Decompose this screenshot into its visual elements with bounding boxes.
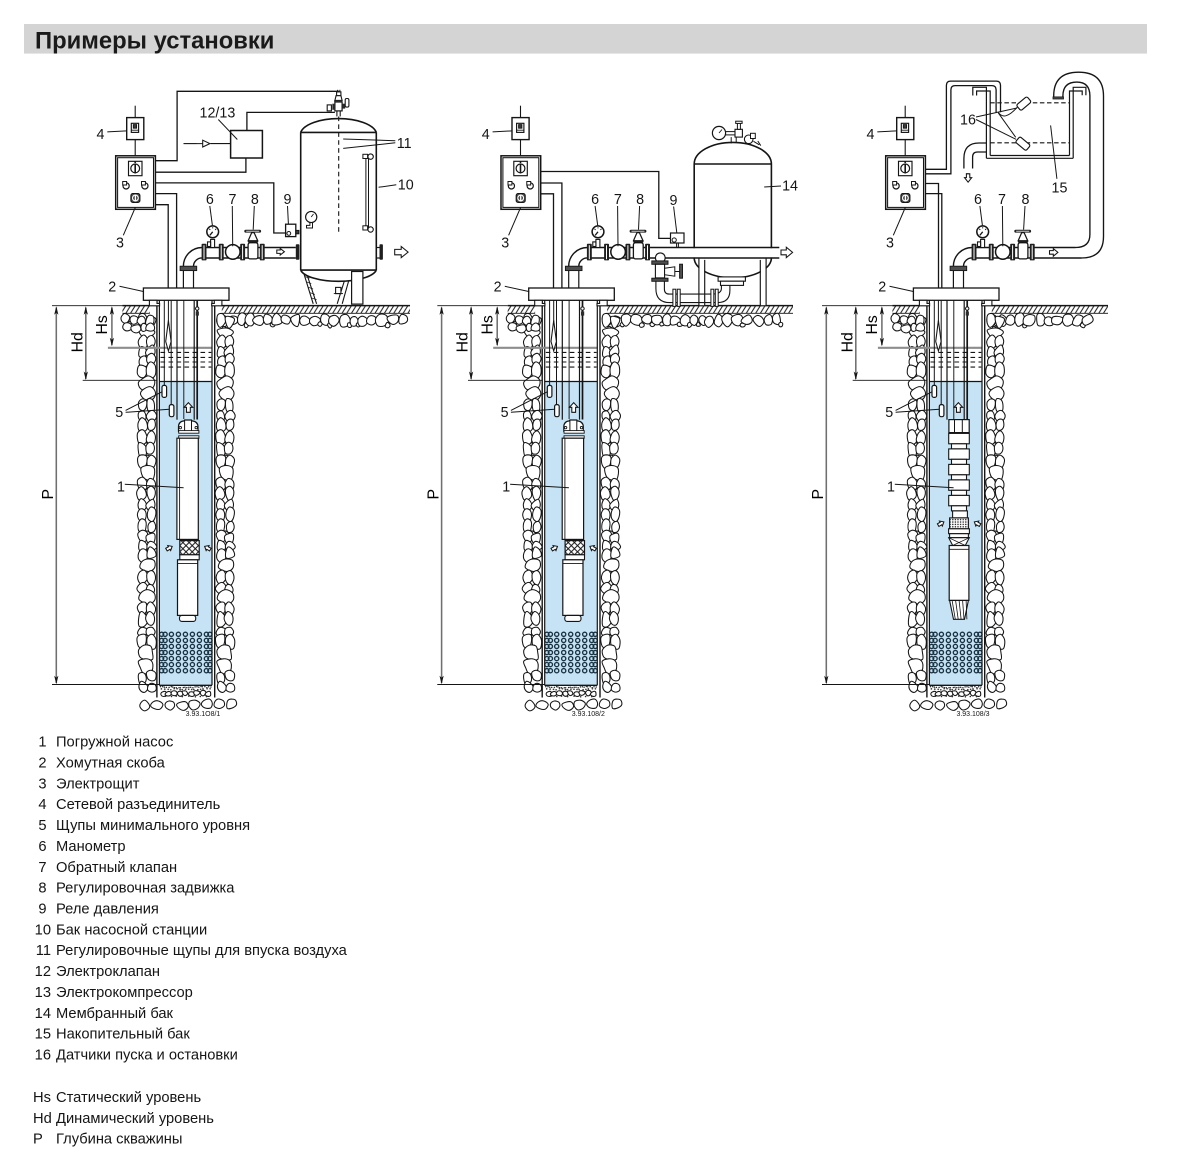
svg-text:Статический уровень: Статический уровень xyxy=(56,1090,201,1106)
svg-text:15: 15 xyxy=(35,1027,51,1043)
svg-text:Глубина скважины: Глубина скважины xyxy=(56,1132,182,1148)
svg-text:11: 11 xyxy=(36,943,51,959)
svg-text:12/13: 12/13 xyxy=(200,106,236,122)
svg-text:7: 7 xyxy=(614,192,622,208)
svg-text:Регулировочные щупы для впуска: Регулировочные щупы для впуска воздуха xyxy=(56,943,348,959)
svg-text:Мембранный бак: Мембранный бак xyxy=(56,1006,174,1022)
svg-text:3: 3 xyxy=(38,776,46,792)
svg-text:15: 15 xyxy=(1052,181,1068,197)
svg-text:1: 1 xyxy=(38,735,46,751)
svg-text:Hd: Hd xyxy=(33,1111,52,1127)
svg-text:Электроклапан: Электроклапан xyxy=(56,964,160,980)
svg-text:8: 8 xyxy=(1022,192,1030,208)
svg-text:8: 8 xyxy=(251,192,259,208)
svg-text:6: 6 xyxy=(38,839,46,855)
svg-text:8: 8 xyxy=(636,192,644,208)
svg-text:14: 14 xyxy=(35,1006,51,1022)
svg-text:P: P xyxy=(33,1132,43,1148)
svg-text:Погружной насос: Погружной насос xyxy=(56,735,173,751)
svg-text:6: 6 xyxy=(974,192,982,208)
svg-text:Реле давления: Реле давления xyxy=(56,902,159,918)
svg-text:8: 8 xyxy=(38,881,46,897)
svg-text:10: 10 xyxy=(35,922,51,938)
svg-text:Датчики пуска и остановки: Датчики пуска и остановки xyxy=(56,1048,238,1064)
svg-text:Регулировочная задвижка: Регулировочная задвижка xyxy=(56,881,235,897)
svg-text:11: 11 xyxy=(397,136,412,152)
svg-text:3.93.108/2: 3.93.108/2 xyxy=(572,711,605,718)
svg-text:Обратный клапан: Обратный клапан xyxy=(56,860,177,876)
svg-text:7: 7 xyxy=(38,860,46,876)
svg-text:2: 2 xyxy=(38,756,46,772)
svg-text:Щупы минимального уровня: Щупы минимального уровня xyxy=(56,818,250,834)
svg-text:9: 9 xyxy=(284,192,292,208)
svg-text:Накопительный бак: Накопительный бак xyxy=(56,1027,190,1043)
svg-text:7: 7 xyxy=(998,192,1006,208)
svg-text:16: 16 xyxy=(35,1048,51,1064)
svg-text:3.93.108/3: 3.93.108/3 xyxy=(956,711,989,718)
svg-text:9: 9 xyxy=(670,193,678,209)
svg-text:Динамический уровень: Динамический уровень xyxy=(56,1111,214,1127)
svg-text:Сетевой разъединитель: Сетевой разъединитель xyxy=(56,797,221,813)
svg-text:10: 10 xyxy=(398,177,414,193)
svg-text:9: 9 xyxy=(38,902,46,918)
svg-text:Манометр: Манометр xyxy=(56,839,126,855)
svg-text:Электрощит: Электрощит xyxy=(56,776,140,792)
svg-text:Hs: Hs xyxy=(33,1090,51,1106)
svg-text:14: 14 xyxy=(782,178,798,194)
svg-text:6: 6 xyxy=(591,192,599,208)
svg-text:4: 4 xyxy=(38,797,46,813)
svg-text:7: 7 xyxy=(229,192,237,208)
svg-text:12: 12 xyxy=(35,964,51,980)
svg-text:Хомутная скоба: Хомутная скоба xyxy=(56,756,166,772)
svg-text:Примеры установки: Примеры установки xyxy=(35,27,274,54)
svg-text:13: 13 xyxy=(35,985,51,1001)
svg-text:6: 6 xyxy=(206,192,214,208)
svg-text:Электрокомпрессор: Электрокомпрессор xyxy=(56,985,193,1001)
svg-text:5: 5 xyxy=(38,818,46,834)
svg-text:3.93.1О8/1: 3.93.1О8/1 xyxy=(186,711,221,718)
svg-text:16: 16 xyxy=(960,113,976,129)
svg-text:Бак насосной станции: Бак насосной станции xyxy=(56,922,207,938)
